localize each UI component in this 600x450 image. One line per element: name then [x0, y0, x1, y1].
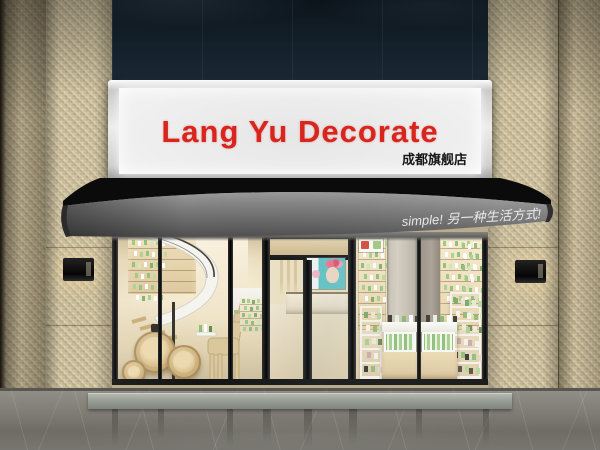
deer-back-shelf	[196, 332, 216, 336]
cabinet-base	[420, 352, 457, 379]
cabinet-top-bottles	[426, 315, 430, 322]
cabinet-base	[382, 352, 418, 379]
wall-shading	[558, 0, 600, 392]
wall-floor-shadow	[0, 388, 600, 391]
glazing-base-rail	[112, 379, 488, 385]
storefront-sign: Lang Yu Decorate 成都旗舰店	[108, 80, 492, 184]
cabinet-top	[420, 322, 457, 332]
rack-items	[454, 298, 458, 304]
shelf-products	[462, 243, 465, 248]
window-mullion	[158, 232, 162, 385]
wall-sconce-right	[515, 260, 546, 283]
pillar-right	[488, 0, 558, 392]
wall-shading	[0, 0, 46, 392]
cabinet-green-products	[422, 332, 455, 352]
cabinet-green-products	[384, 332, 416, 352]
window-mullion	[417, 232, 421, 385]
sign-main-text: Lang Yu Decorate	[119, 114, 481, 150]
cabinet-top	[382, 322, 418, 332]
curtain-glass-upper	[112, 0, 488, 92]
wall-edge-shadow	[0, 0, 6, 392]
pillar-left	[46, 0, 112, 392]
pillar-shading	[488, 0, 558, 392]
sign-sub-text: 成都旗舰店	[402, 149, 467, 168]
outer-wall-left	[0, 0, 46, 392]
door-center-stiles	[303, 260, 312, 379]
deer-shelf-bottles	[199, 324, 212, 332]
pillar-seam	[46, 325, 112, 326]
product-display-cabinet	[420, 322, 457, 379]
rack-items	[364, 312, 368, 318]
awning-underside-shadow	[112, 232, 488, 241]
rack-items	[465, 300, 469, 306]
white-etagere-rack	[360, 306, 382, 379]
window-mullion	[228, 232, 233, 385]
storefront-glazing	[112, 232, 488, 385]
awning-valance	[63, 192, 551, 237]
door-frame-right	[348, 232, 356, 385]
window-frame	[112, 232, 118, 385]
pillar-seam	[46, 247, 112, 248]
red-logo-card	[361, 241, 369, 249]
wall-seam	[558, 0, 559, 392]
pillar-seam	[488, 247, 558, 248]
awning-valance-shading	[63, 192, 551, 237]
door-frame-left	[262, 232, 270, 385]
green-logo-card	[373, 241, 381, 249]
product-display-cabinet	[382, 322, 418, 379]
entrance-threshold-step	[88, 393, 512, 409]
wall-sconce-left	[63, 258, 94, 281]
pillar-seam	[488, 325, 558, 326]
window-frame	[482, 232, 488, 385]
pillar-shading	[46, 0, 112, 392]
shelf-products	[443, 241, 446, 246]
cabinet-top-bottles	[388, 315, 392, 322]
green-products	[242, 299, 245, 303]
sign-lightbox-panel: Lang Yu Decorate 成都旗舰店	[119, 88, 481, 174]
storefront-photo: Lang Yu Decorate 成都旗舰店 simple! 另一种生活方式!	[0, 0, 600, 450]
outer-wall-right	[558, 0, 600, 392]
